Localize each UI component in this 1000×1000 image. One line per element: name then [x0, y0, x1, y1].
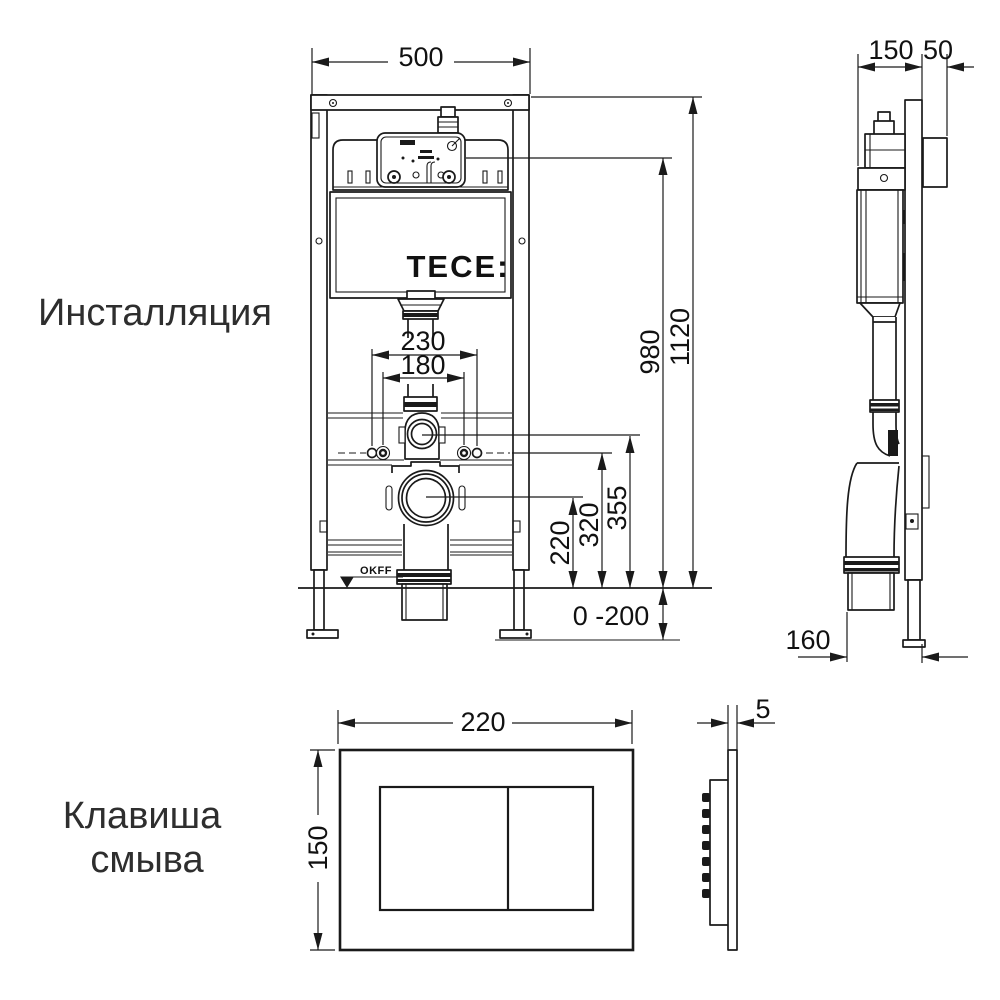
dim-drain-offset: 160: [785, 625, 830, 655]
section-labels: Инсталляция Клавиша смыва: [38, 292, 272, 881]
tece-logo: TECE:: [407, 249, 510, 284]
dim-plate-width-group: 220: [338, 707, 632, 744]
dim-fixing-stud-height: 320: [574, 502, 604, 547]
technical-drawing-page: 500: [0, 0, 1000, 1000]
flush-plate-side-view: 5: [697, 694, 775, 950]
dim-drain-offset-group: 160: [785, 612, 968, 663]
left-foot: [314, 570, 324, 630]
dim-frame-width-group: 500: [312, 42, 530, 94]
dim-frame-height: 1120: [665, 308, 695, 366]
floor-level: OKFF: [298, 565, 712, 640]
dim-frame-width: 500: [398, 42, 443, 72]
side-flush-plate: [923, 138, 947, 187]
dim-plate-thickness: 5: [755, 694, 770, 724]
technical-drawing: 500: [0, 0, 1000, 1000]
plate-side-bracket: [710, 780, 728, 925]
drain-outlet: [386, 462, 465, 620]
installation-label: Инсталляция: [38, 292, 272, 334]
flush-plate-label-line1: Клавиша: [63, 795, 222, 837]
flush-plate-body: [340, 750, 633, 950]
installation-side-view: 150 50: [785, 35, 974, 663]
dim-plate-height: 150: [303, 825, 333, 870]
dim-frame-depth: 150: [868, 35, 913, 65]
cistern: TECE:: [330, 107, 511, 298]
okff-floor-mark: OKFF: [360, 565, 392, 577]
dim-stud-spacing: 180: [400, 350, 445, 380]
plate-side-body: [728, 750, 737, 950]
flush-plate-front-view: 220 150: [303, 707, 633, 950]
dim-drain-outlet-height: 220: [545, 520, 575, 565]
installation-front-view: 500: [298, 42, 712, 640]
side-pipes: [844, 317, 899, 610]
dim-flush-bend-height: 355: [602, 485, 632, 530]
dim-plate-thickness-group: 5: [697, 694, 775, 750]
drain-outlet-circle: [402, 474, 450, 522]
dim-foot-adjustment: 0 -200: [573, 601, 650, 631]
side-cistern: [857, 112, 905, 317]
right-foot: [514, 570, 524, 630]
inspection-box: [377, 133, 465, 187]
plate-side-clips: [702, 793, 710, 898]
dim-plate-height-group: 150: [303, 750, 335, 950]
flush-plate-label-line2: смыва: [90, 839, 204, 881]
dim-service-opening-height: 980: [635, 329, 665, 374]
dim-front-offset: 50: [923, 35, 953, 65]
dim-plate-width: 220: [460, 707, 505, 737]
valve-nipple: [438, 107, 458, 133]
